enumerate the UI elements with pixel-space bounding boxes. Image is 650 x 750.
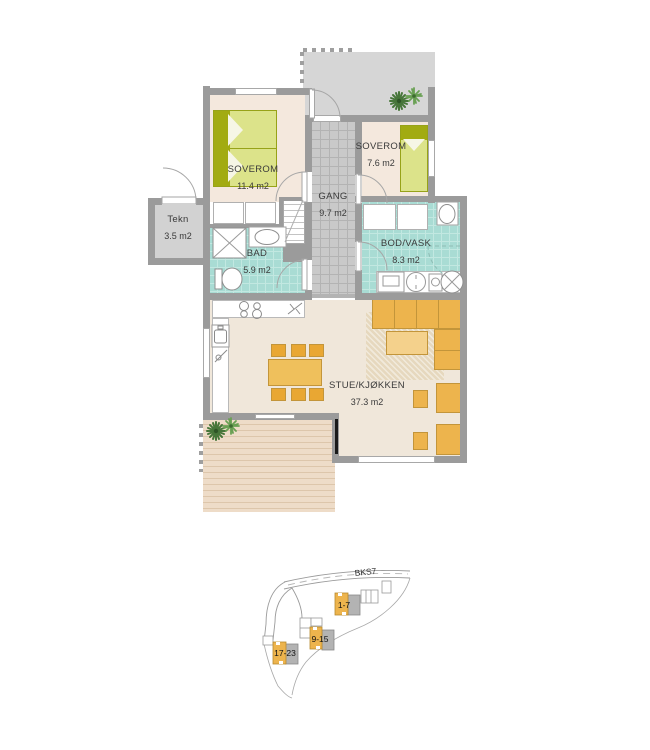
room-name: SOVEROM: [356, 141, 407, 152]
wall: [428, 177, 435, 203]
site-building-label: 1-7: [338, 600, 351, 610]
wardrobe: [245, 202, 276, 224]
pillow: [228, 114, 243, 146]
floor-plan: SOVEROM 11.4 m2 SOVEROM 7.6 m2 GANG 9.7 …: [0, 0, 650, 750]
room-area: 8.3 m2: [381, 255, 431, 265]
kitchen-counter-top: [212, 300, 305, 318]
wardrobe: [397, 204, 428, 230]
wall: [203, 293, 312, 300]
wall: [355, 293, 467, 300]
terrace-dashed-edge: [300, 52, 304, 88]
chair: [291, 388, 306, 401]
armchair: [436, 424, 463, 455]
wall: [148, 258, 210, 265]
wall: [428, 87, 435, 115]
room-area: 9.7 m2: [318, 208, 347, 218]
chair: [291, 344, 306, 357]
coffee-table: [386, 331, 428, 355]
wall: [148, 198, 155, 265]
room-label-soverom2: SOVEROM 7.6 m2: [356, 141, 407, 168]
room-area: 3.5 m2: [164, 231, 192, 241]
chair: [271, 344, 286, 357]
kitchen-counter-left: [212, 318, 229, 413]
room-label-soverom1: SOVEROM 11.4 m2: [228, 164, 279, 191]
footstool: [413, 432, 428, 450]
wall: [279, 200, 283, 245]
wardrobe: [213, 202, 244, 224]
room-name: Tekn: [164, 214, 192, 225]
deck-dashed-edge: [199, 424, 203, 472]
room-label-gang: GANG 9.7 m2: [318, 191, 347, 218]
armchair: [436, 383, 463, 413]
chair: [309, 388, 324, 401]
wall: [203, 86, 210, 300]
site-building-label: 9-15: [311, 634, 328, 644]
window: [235, 88, 277, 95]
wall: [460, 196, 467, 300]
site-plan: BKS7 1-7 9-15 17-23: [258, 562, 493, 702]
entry-terrace-floor: [303, 52, 435, 122]
sofa-chaise: [434, 329, 462, 370]
wall: [428, 115, 435, 140]
site-building-label: 17-23: [274, 648, 296, 658]
wall: [305, 290, 312, 300]
room-label-stue: STUE/KJØKKEN 37.3 m2: [329, 380, 405, 407]
sofa: [372, 298, 462, 329]
wall: [203, 224, 282, 228]
room-label-bad: BAD 5.9 m2: [243, 248, 271, 275]
wall: [355, 196, 467, 202]
wall: [355, 270, 362, 300]
room-name: GANG: [318, 191, 347, 202]
linen-closet: [283, 198, 305, 244]
wall: [305, 115, 312, 172]
room-label-bodvask: BOD/VASK 8.3 m2: [381, 238, 431, 265]
window: [358, 456, 435, 463]
dining-table: [268, 359, 322, 386]
room-label-tekn: Tekn 3.5 m2: [164, 214, 192, 241]
laundry-counter: [376, 271, 463, 293]
wall: [279, 197, 307, 201]
chair: [309, 344, 324, 357]
terrace-dashed-edge: [303, 48, 355, 52]
wall: [203, 300, 210, 328]
bed-divider: [230, 148, 276, 149]
wall: [283, 244, 305, 262]
door-threshold: [313, 115, 341, 122]
wall: [355, 203, 362, 242]
footstool: [413, 390, 428, 408]
room-name: BOD/VASK: [381, 238, 431, 249]
chair: [271, 388, 286, 401]
room-name: BAD: [243, 248, 271, 259]
room-area: 11.4 m2: [228, 181, 279, 191]
wall: [305, 202, 312, 260]
wall: [460, 300, 467, 463]
bed-headboard: [401, 126, 427, 140]
deck-floor: [203, 419, 335, 512]
site-road-label: BKS7: [354, 566, 377, 578]
room-area: 5.9 m2: [243, 265, 271, 275]
room-name: STUE/KJØKKEN: [329, 380, 405, 391]
threshold: [312, 294, 355, 298]
room-name: SOVEROM: [228, 164, 279, 175]
wall: [203, 378, 210, 420]
window: [203, 328, 210, 378]
room-area: 7.6 m2: [356, 158, 407, 168]
room-area: 37.3 m2: [329, 397, 405, 407]
site-plan-drawing: BKS7 1-7 9-15 17-23: [258, 562, 493, 702]
sliding-door-icon: [335, 419, 338, 454]
wardrobe: [363, 204, 396, 230]
window: [428, 140, 435, 177]
window: [255, 414, 295, 419]
